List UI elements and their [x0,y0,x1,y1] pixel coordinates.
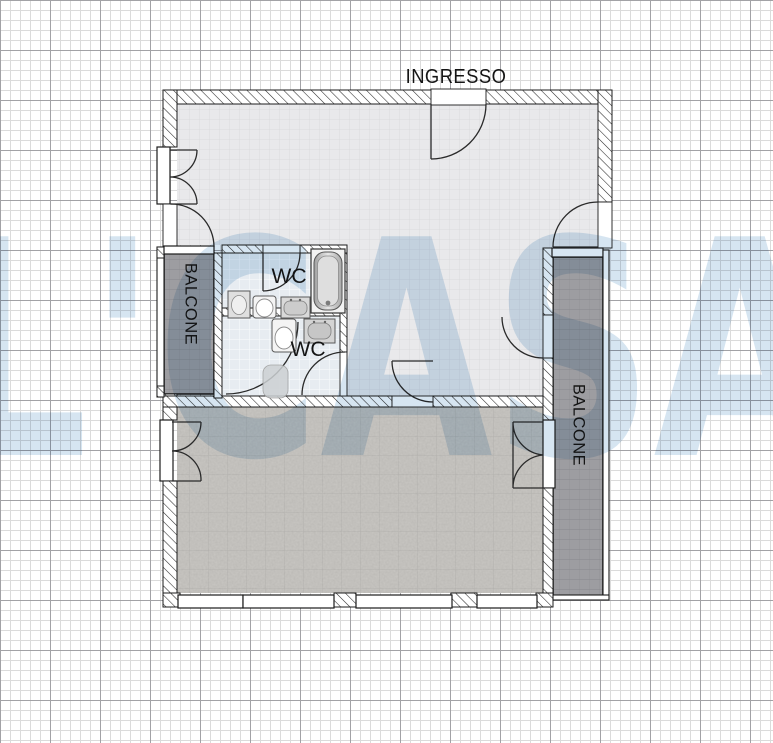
window-left-top [157,147,170,204]
bottom-window-2 [243,595,334,608]
bathtub-icon [311,249,345,313]
french-door-right [543,420,555,488]
floorplan-page: INGRESSO WC WC BALCONE BALCONE L'CASA [0,0,773,743]
door-right-gap [598,202,612,248]
shower-tray-icon [263,365,288,398]
wc-bottom-label: WC [291,338,326,361]
wc-top-door-gap [263,245,300,253]
toilet-top-icon [253,296,276,318]
bottom-room-floor [177,407,553,593]
balcony-right-label: BALCONE [570,384,588,466]
bottom-window-1 [178,595,243,608]
wc-bottom-door-gap [340,352,347,396]
sink-top-icon [281,297,310,318]
floorplan-canvas: INGRESSO WC WC BALCONE BALCONE [0,0,773,743]
door-left-gap [163,204,177,247]
bottom-window-4 [477,595,537,608]
bidet-icon [228,291,250,318]
entrance-label: INGRESSO [406,66,507,88]
balcony-left-sill [164,246,214,254]
balcony-right-sill [552,248,603,257]
balcony-left-label: BALCONE [182,263,200,345]
wc-top-label: WC [272,265,307,288]
bottom-window-3 [356,595,452,608]
entrance-door-gap [431,89,486,105]
window-left-bottom [160,420,173,481]
balcony-right-door-gap [543,315,553,358]
